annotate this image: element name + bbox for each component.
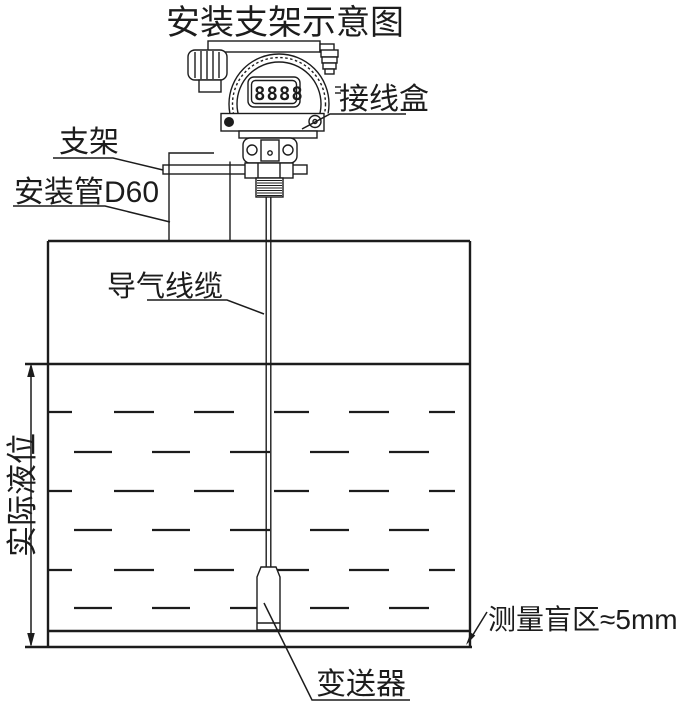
mounting-pipe [169,153,230,241]
page-title: 安装支架示意图 [166,4,404,42]
hex-nut [245,163,293,178]
bolt-left-icon [224,117,234,127]
process-yoke [243,138,297,163]
arrow-down-icon [27,633,35,647]
blind-zone-label: 测量盲区≈5mm [488,604,678,635]
transmitter-label: 变送器 [316,668,406,701]
blind-zone-leader [471,612,487,638]
lcd-display: 8888 [248,77,304,107]
air-cable [266,197,271,568]
junction-box-label: 接线盒 [339,83,429,116]
installation-diagram: 安装支架示意图 [0,0,700,708]
diagram-page: 安装支架示意图 [0,0,700,708]
head-top-cap [208,41,320,52]
liquid-dash-pattern [48,412,455,608]
mounting-pipe-label: 安装管D60 [14,176,159,209]
threaded-nipple [256,178,283,197]
probe-transmitter [257,567,280,630]
bracket-leader [53,158,163,170]
bracket-label: 支架 [59,126,119,159]
cable-gland-icon [188,50,227,92]
air-cable-label: 导气线缆 [107,270,223,303]
lcd-value: 8888 [254,83,304,105]
actual-level-label: 实际液位 [5,433,40,557]
tank [25,241,472,647]
head-step [239,131,317,138]
